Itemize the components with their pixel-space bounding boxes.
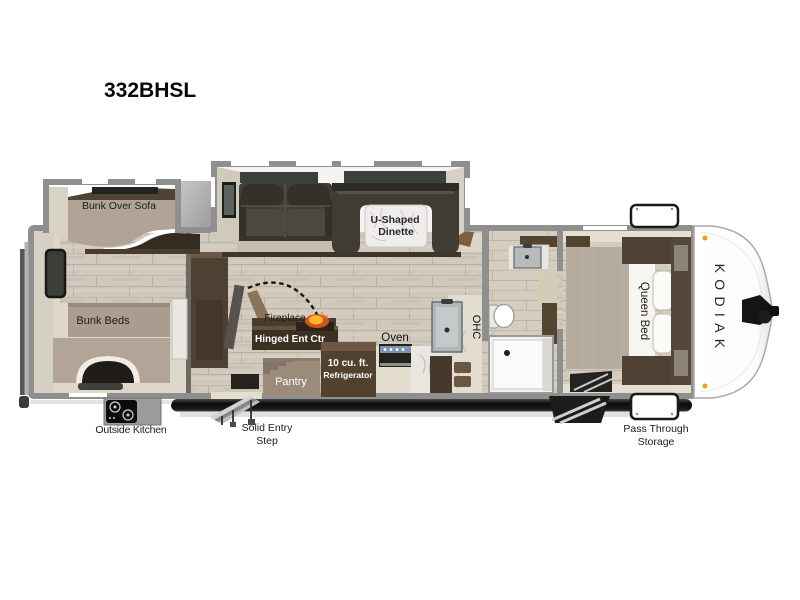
svg-text:Pass Through: Pass Through [623,423,688,435]
svg-text:U-Shaped: U-Shaped [370,214,419,226]
svg-text:Refrigerator: Refrigerator [323,370,373,380]
svg-text:332BHSL: 332BHSL [104,79,196,102]
svg-text:Outside Kitchen: Outside Kitchen [95,424,166,436]
svg-text:10 cu. ft.: 10 cu. ft. [328,358,369,369]
svg-text:KODIAK: KODIAK [712,264,728,355]
svg-text:Oven: Oven [381,332,409,344]
svg-text:Bunk Beds: Bunk Beds [76,315,130,327]
svg-text:Fireplace: Fireplace [264,313,306,324]
svg-text:Hinged Ent Ctr: Hinged Ent Ctr [255,334,325,345]
svg-text:OHC: OHC [470,315,482,340]
svg-text:Storage: Storage [638,436,675,448]
svg-text:Bunk Over Sofa: Bunk Over Sofa [82,200,156,212]
svg-text:Queen Bed: Queen Bed [638,282,650,340]
svg-text:Step: Step [256,435,278,447]
svg-text:Dinette: Dinette [378,226,414,238]
svg-text:Pantry: Pantry [275,376,307,388]
svg-text:Solid Entry: Solid Entry [242,422,294,434]
